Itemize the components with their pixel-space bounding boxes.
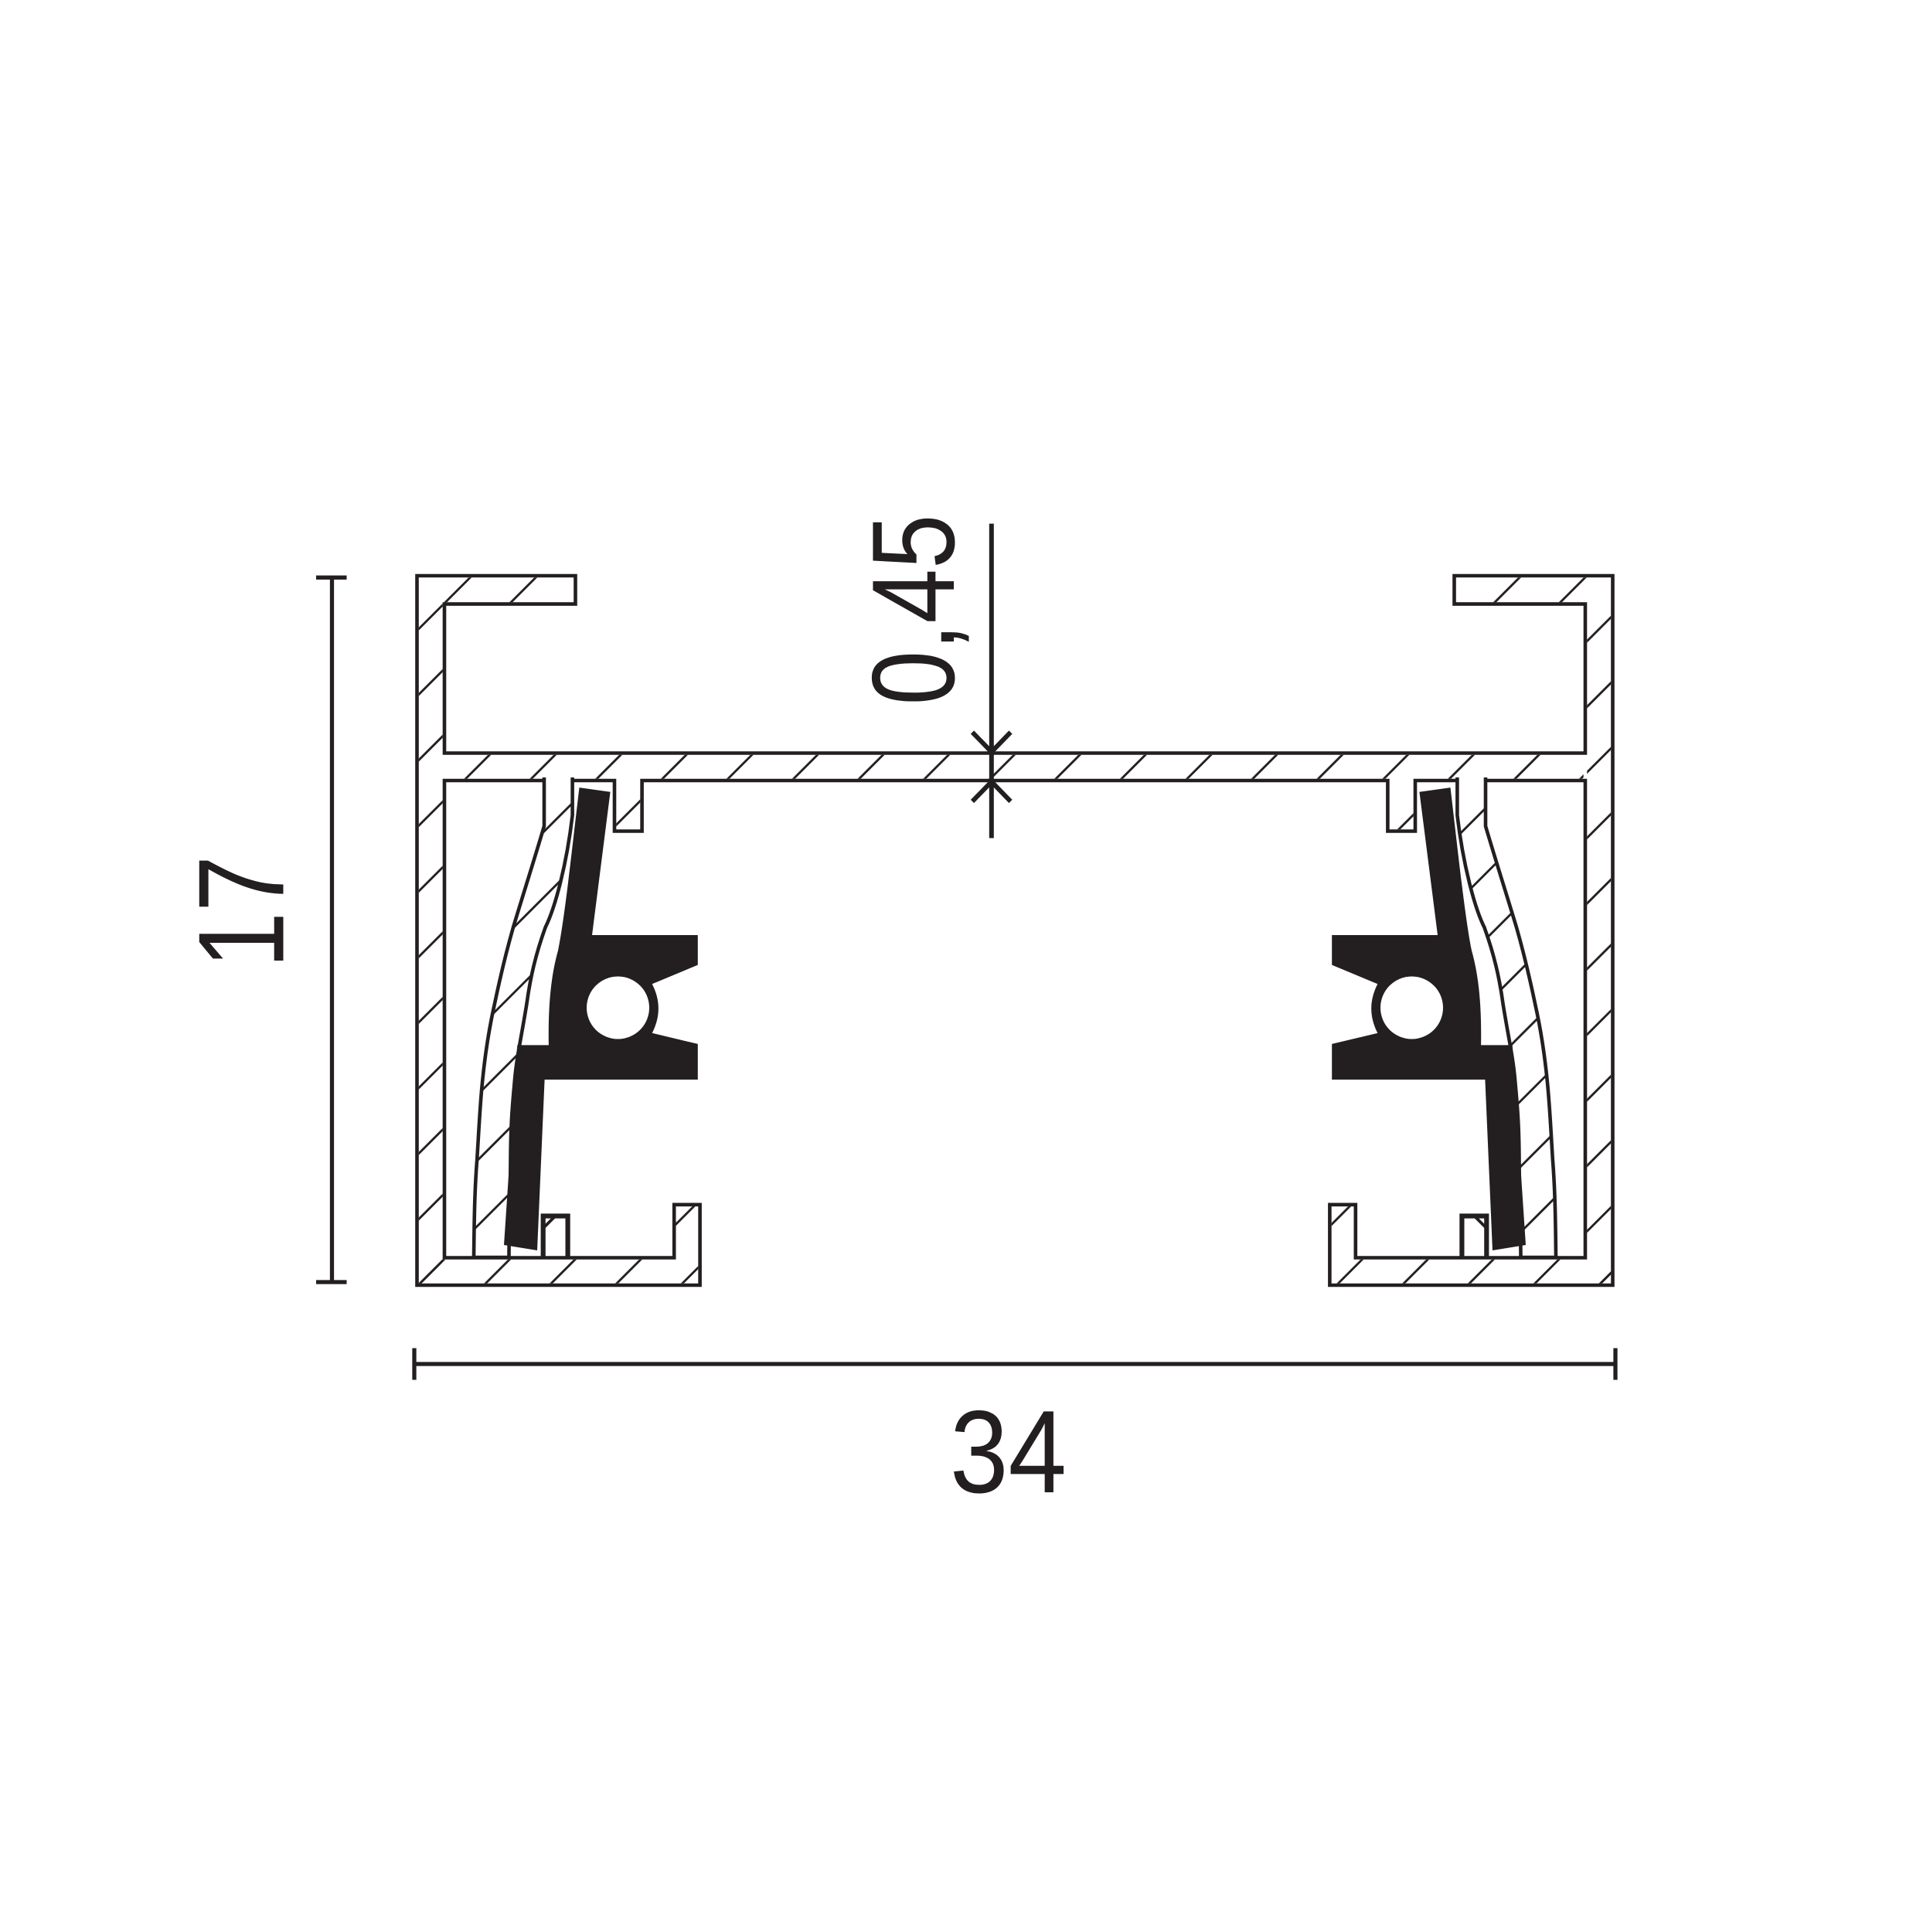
svg-text:0,45: 0,45 [848, 515, 979, 706]
svg-text:17: 17 [174, 855, 310, 968]
svg-text:34: 34 [950, 1386, 1067, 1518]
